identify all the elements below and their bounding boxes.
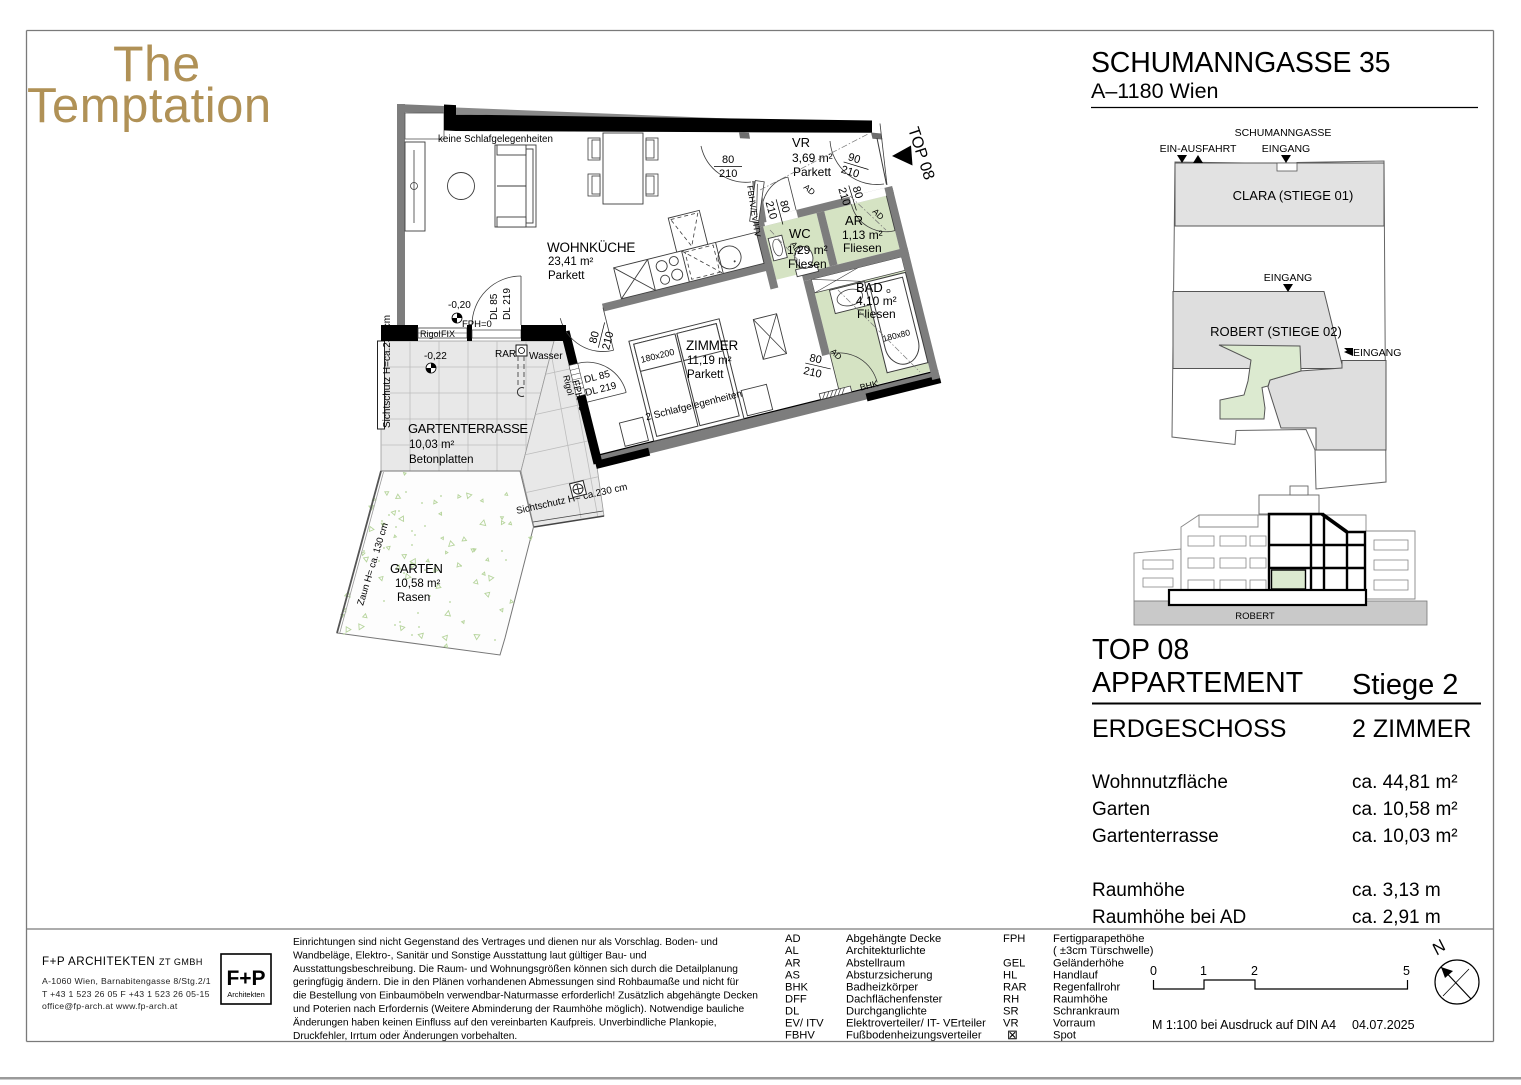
svg-text:2: 2 xyxy=(1251,964,1258,978)
svg-text:Abgehängte Decke: Abgehängte Decke xyxy=(846,933,941,945)
svg-text:AL: AL xyxy=(785,945,799,957)
svg-text:( ±3cm Türschwelle): ( ±3cm Türschwelle) xyxy=(1053,945,1154,957)
svg-text:Einrichtungen sind nicht Gegen: Einrichtungen sind nicht Gegenstand des … xyxy=(293,937,718,948)
svg-text:FIX: FIX xyxy=(441,329,455,339)
svg-text:10,03 m²: 10,03 m² xyxy=(409,439,455,451)
svg-text:HL: HL xyxy=(1003,970,1017,982)
svg-text:WOHNKÜCHE: WOHNKÜCHE xyxy=(547,240,635,255)
svg-text:CLARA (STIEGE 01): CLARA (STIEGE 01) xyxy=(1233,188,1354,203)
svg-text:Handlauf: Handlauf xyxy=(1053,970,1099,982)
svg-text:die Bestellung von Einbaumöbel: die Bestellung von Einbaumöbeln verwendb… xyxy=(293,991,758,1002)
svg-text:ROBERT: ROBERT xyxy=(1235,611,1275,622)
svg-text:-0,22: -0,22 xyxy=(424,351,447,362)
svg-text:0: 0 xyxy=(1150,964,1157,978)
svg-text:Parkett: Parkett xyxy=(548,270,585,282)
svg-text:Fliesen: Fliesen xyxy=(857,307,896,321)
svg-text:RAR: RAR xyxy=(1003,982,1027,994)
svg-text:TOP 08: TOP 08 xyxy=(1092,634,1189,666)
svg-text:4,10 m²: 4,10 m² xyxy=(856,294,897,308)
svg-text:GEL: GEL xyxy=(1003,958,1025,970)
svg-text:VR: VR xyxy=(792,135,810,150)
svg-text:Dachflächenfenster: Dachflächenfenster xyxy=(846,994,943,1006)
svg-text:Regenfallrohr: Regenfallrohr xyxy=(1053,982,1120,994)
svg-text:ca. 10,58 m²: ca. 10,58 m² xyxy=(1352,799,1458,820)
svg-text:Wasser: Wasser xyxy=(529,351,563,362)
svg-text:ROBERT (STIEGE 02): ROBERT (STIEGE 02) xyxy=(1210,324,1342,339)
svg-text:210: 210 xyxy=(719,168,737,180)
svg-text:RH: RH xyxy=(1003,994,1019,1006)
svg-text:SR: SR xyxy=(1003,1006,1019,1018)
svg-text:ca. 44,81 m²: ca. 44,81 m² xyxy=(1352,772,1458,793)
svg-text:Abstellraum: Abstellraum xyxy=(846,958,905,970)
svg-text:Garten: Garten xyxy=(1092,799,1150,820)
svg-text:geringfügig ändern. Die in den: geringfügig ändern. Die in den Plänen vo… xyxy=(293,977,739,988)
svg-text:FBHV: FBHV xyxy=(785,1030,815,1042)
svg-text:Wohnnutzfläche: Wohnnutzfläche xyxy=(1092,772,1228,793)
svg-text:F+P ARCHITEKTEN ZT GMBH: F+P ARCHITEKTEN ZT GMBH xyxy=(42,955,203,968)
svg-text:EIN-AUSFAHRT: EIN-AUSFAHRT xyxy=(1160,143,1237,155)
svg-text:EINGANG: EINGANG xyxy=(1353,347,1401,359)
svg-text:EV/ ITV: EV/ ITV xyxy=(785,1018,824,1030)
svg-text:Fliesen: Fliesen xyxy=(843,241,882,255)
svg-text:Geländerhöhe: Geländerhöhe xyxy=(1053,958,1124,970)
svg-text:11,19 m²: 11,19 m² xyxy=(687,355,732,367)
svg-text:APPARTEMENT: APPARTEMENT xyxy=(1092,667,1303,699)
svg-text:DL: DL xyxy=(785,1006,799,1018)
svg-text:und Poterien nach Erfordernis: und Poterien nach Erfordernis (Weitere A… xyxy=(293,1004,744,1015)
svg-text:Raumhöhe bei AD: Raumhöhe bei AD xyxy=(1092,907,1246,928)
svg-text:SCHUMANNGASSE 35: SCHUMANNGASSE 35 xyxy=(1091,47,1390,79)
svg-text:Fertigparapethöhe: Fertigparapethöhe xyxy=(1053,933,1144,945)
svg-text:Änderungen haben keinen Einflu: Änderungen haben keinen Einfluss auf den… xyxy=(293,1016,717,1028)
svg-text:1: 1 xyxy=(1200,964,1207,978)
svg-text:FPH: FPH xyxy=(1003,933,1025,945)
svg-text:DL 85: DL 85 xyxy=(489,293,500,320)
svg-text:Spot: Spot xyxy=(1053,1030,1077,1042)
svg-text:AR: AR xyxy=(845,213,863,228)
svg-text:Fußbodenheizungsverteiler: Fußbodenheizungsverteiler xyxy=(846,1030,982,1042)
svg-text:ca. 3,13 m: ca. 3,13 m xyxy=(1352,880,1441,901)
svg-text:Architekturlichte: Architekturlichte xyxy=(846,945,926,957)
svg-text:Vorraum: Vorraum xyxy=(1053,1018,1095,1030)
svg-text:Fliesen: Fliesen xyxy=(788,257,827,271)
svg-text:Parkett: Parkett xyxy=(687,369,724,381)
svg-text:keine Schlafgelegenheiten: keine Schlafgelegenheiten xyxy=(438,134,553,145)
svg-text:F+P: F+P xyxy=(226,967,265,990)
svg-text:⊠: ⊠ xyxy=(1007,1027,1018,1042)
svg-text:EINGANG: EINGANG xyxy=(1264,272,1312,284)
svg-text:GARTENTERRASSE: GARTENTERRASSE xyxy=(408,421,528,436)
svg-text:04.07.2025: 04.07.2025 xyxy=(1352,1018,1415,1032)
svg-text:FPH=0: FPH=0 xyxy=(462,319,492,330)
svg-text:Druckfehler, Irrtum oder Änder: Druckfehler, Irrtum oder Änderungen vorb… xyxy=(293,1030,517,1042)
svg-text:A-1060 Wien, Barnabitengasse 8: A-1060 Wien, Barnabitengasse 8/Stg.2/1 xyxy=(42,976,211,986)
svg-text:GARTEN: GARTEN xyxy=(390,561,443,576)
svg-text:2 ZIMMER: 2 ZIMMER xyxy=(1352,715,1471,743)
svg-text:Absturzsicherung: Absturzsicherung xyxy=(846,970,932,982)
svg-text:Badheizkörper: Badheizkörper xyxy=(846,982,918,994)
svg-text:ZIMMER: ZIMMER xyxy=(686,338,738,353)
svg-text:EINGANG: EINGANG xyxy=(1262,143,1310,155)
svg-text:SCHUMANNGASSE: SCHUMANNGASSE xyxy=(1235,127,1332,139)
svg-text:WC: WC xyxy=(789,226,811,241)
svg-text:Raumhöhe: Raumhöhe xyxy=(1053,994,1108,1006)
svg-text:M 1:100 bei Ausdruck auf DIN A: M 1:100 bei Ausdruck auf DIN A4 xyxy=(1152,1018,1336,1032)
svg-text:Ausstattungsbeschreibung. Die: Ausstattungsbeschreibung. Die Raum- und … xyxy=(293,964,738,975)
svg-text:Rasen: Rasen xyxy=(397,592,430,604)
svg-text:1,13 m²: 1,13 m² xyxy=(842,228,883,242)
svg-text:A–1180 Wien: A–1180 Wien xyxy=(1091,79,1219,103)
svg-text:AD: AD xyxy=(785,933,801,945)
svg-text:AR: AR xyxy=(785,958,801,970)
svg-text:Raumhöhe: Raumhöhe xyxy=(1092,880,1185,901)
svg-text:BAD: BAD xyxy=(856,280,883,295)
svg-text:Architekten: Architekten xyxy=(227,990,265,999)
svg-text:Stiege 2: Stiege 2 xyxy=(1352,669,1458,701)
svg-text:DL 219: DL 219 xyxy=(502,288,513,320)
svg-text:Gartenterrasse: Gartenterrasse xyxy=(1092,826,1219,847)
svg-text:Schrankraum: Schrankraum xyxy=(1053,1006,1120,1018)
svg-text:ERDGESCHOSS: ERDGESCHOSS xyxy=(1092,715,1286,743)
svg-text:Temptation: Temptation xyxy=(27,79,272,133)
svg-text:Wandbeläge, Elektro-, Sanitär: Wandbeläge, Elektro-, Sanitär und Sonsti… xyxy=(293,950,647,961)
svg-text:BHK: BHK xyxy=(785,982,809,994)
svg-text:office@fp-arch.at www.fp-ar: office@fp-arch.at www.fp-arch.at xyxy=(42,1001,178,1011)
svg-text:T +43 1 523 26 05 F +43 1 52: T +43 1 523 26 05 F +43 1 523 26 05-15 xyxy=(42,989,210,999)
svg-text:RAR: RAR xyxy=(495,349,516,360)
svg-text:10,58 m²: 10,58 m² xyxy=(395,578,441,590)
svg-text:Parkett: Parkett xyxy=(793,165,832,179)
svg-text:80: 80 xyxy=(722,154,734,166)
svg-text:AS: AS xyxy=(785,970,800,982)
svg-text:Betonplatten: Betonplatten xyxy=(409,454,474,466)
svg-text:Rigol: Rigol xyxy=(420,329,441,339)
svg-text:Elektroverteiler/ IT- VErteile: Elektroverteiler/ IT- VErteiler xyxy=(846,1018,986,1030)
svg-text:23,41 m²: 23,41 m² xyxy=(548,256,594,268)
svg-text:DFF: DFF xyxy=(785,994,807,1006)
svg-text:ca. 2,91 m: ca. 2,91 m xyxy=(1352,907,1441,928)
svg-text:-0,20: -0,20 xyxy=(448,300,471,311)
svg-text:Durchganglichte: Durchganglichte xyxy=(846,1006,927,1018)
svg-text:5: 5 xyxy=(1403,964,1410,978)
svg-text:ca. 10,03 m²: ca. 10,03 m² xyxy=(1352,826,1458,847)
